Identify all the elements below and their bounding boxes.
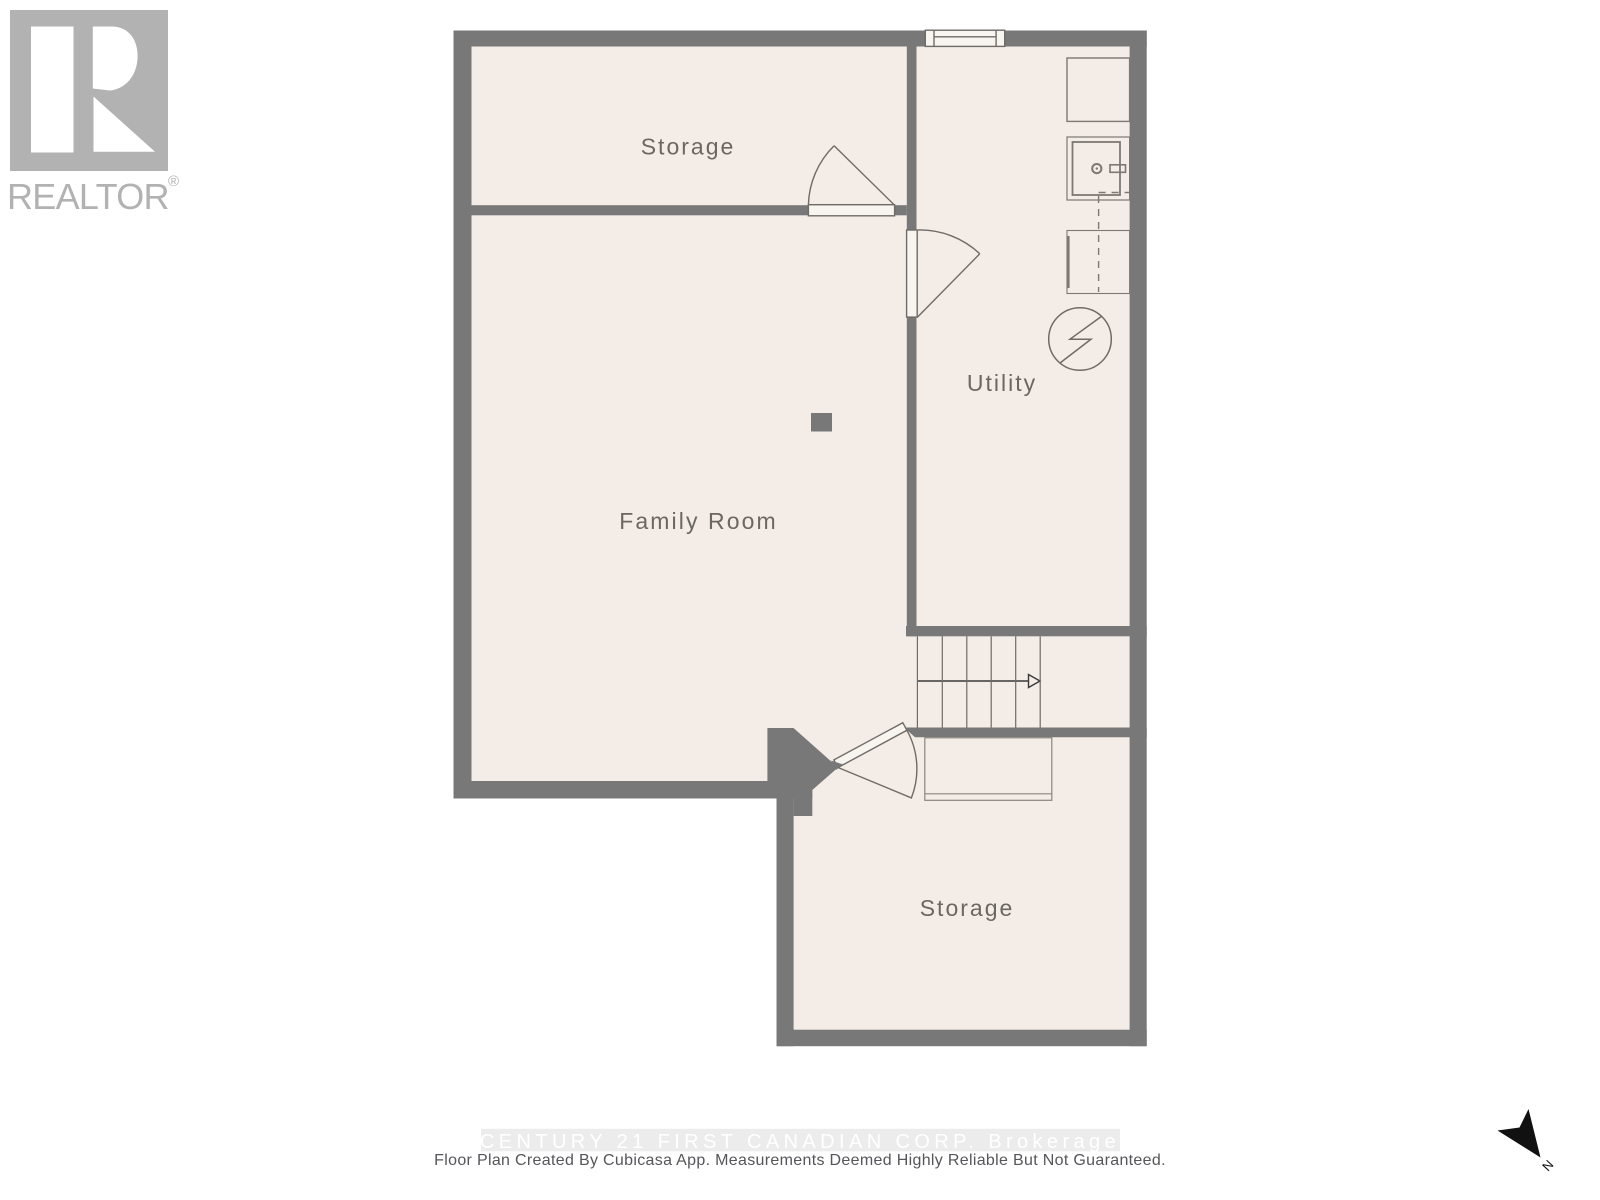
svg-text:®: ® bbox=[168, 173, 179, 190]
svg-text:REALTOR: REALTOR bbox=[7, 176, 169, 217]
svg-text:Family Room: Family Room bbox=[619, 508, 778, 534]
svg-text:Storage: Storage bbox=[920, 895, 1015, 921]
svg-text:CENTURY 21 FIRST CANADIAN CORP: CENTURY 21 FIRST CANADIAN CORP. Brokerag… bbox=[480, 1131, 1120, 1153]
svg-text:Storage: Storage bbox=[641, 134, 736, 160]
svg-text:Floor Plan Created By Cubicasa: Floor Plan Created By Cubicasa App. Meas… bbox=[434, 1152, 1166, 1169]
svg-text:Utility: Utility bbox=[967, 370, 1037, 396]
svg-text:N: N bbox=[1539, 1157, 1556, 1174]
